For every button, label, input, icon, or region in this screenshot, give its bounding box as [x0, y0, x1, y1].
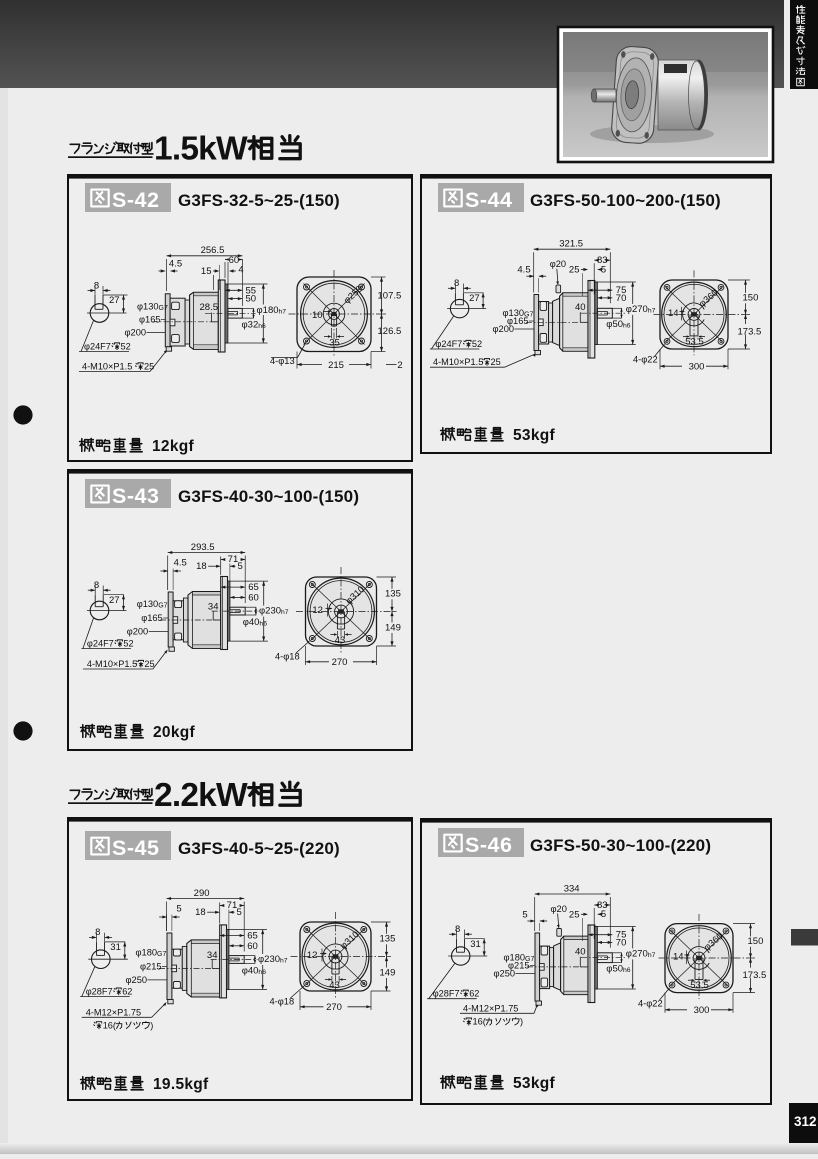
svg-text:8: 8 [454, 278, 459, 289]
svg-text:10: 10 [312, 310, 323, 321]
svg-text:12: 12 [312, 605, 323, 616]
svg-text:300: 300 [694, 1005, 710, 1016]
svg-text:150: 150 [743, 292, 759, 303]
svg-text:290: 290 [194, 888, 210, 899]
svg-text:20kgf: 20kgf [153, 724, 196, 741]
svg-text:14: 14 [668, 308, 679, 319]
svg-text:31: 31 [470, 939, 481, 950]
svg-text:27: 27 [469, 293, 480, 304]
svg-text:107.5: 107.5 [378, 291, 402, 302]
svg-text:43: 43 [329, 980, 340, 991]
svg-text:62: 62 [122, 987, 132, 997]
svg-text:φ24F7: φ24F7 [435, 339, 462, 349]
svg-text:270: 270 [326, 1002, 342, 1013]
svg-text:4-φ18: 4-φ18 [275, 652, 300, 662]
svg-text:G3FS-40-5~25-(220): G3FS-40-5~25-(220) [178, 839, 340, 858]
svg-text:G3FS-50-30~100-(220): G3FS-50-30~100-(220) [530, 836, 711, 855]
svg-text:25: 25 [144, 362, 154, 372]
svg-text:256.5: 256.5 [201, 245, 225, 256]
svg-text:S-43: S-43 [112, 484, 159, 508]
svg-text:53.5: 53.5 [690, 980, 709, 991]
svg-text:4-φ22: 4-φ22 [638, 998, 663, 1008]
svg-text:18: 18 [196, 561, 207, 572]
svg-text:40: 40 [575, 947, 586, 958]
svg-text:φ28F7: φ28F7 [86, 987, 113, 997]
svg-text:G3FS-40-30~100-(150): G3FS-40-30~100-(150) [178, 487, 359, 506]
svg-text:25: 25 [569, 265, 580, 276]
svg-text:52: 52 [123, 639, 133, 649]
svg-text:65: 65 [247, 931, 258, 942]
svg-text:149: 149 [385, 623, 401, 634]
svg-text:5: 5 [522, 909, 527, 920]
svg-text:G3FS-32-5~25-(150): G3FS-32-5~25-(150) [178, 191, 340, 210]
svg-text:4-M10×P1.5: 4-M10×P1.5 [87, 659, 137, 669]
svg-text:149: 149 [380, 968, 396, 979]
svg-text:φ24F7: φ24F7 [84, 342, 111, 352]
svg-text:53kgf: 53kgf [513, 427, 556, 444]
svg-text:4-M10×P1.5: 4-M10×P1.5 [433, 357, 483, 367]
svg-text:4-φ22: 4-φ22 [633, 355, 658, 365]
svg-text:19.5kgf: 19.5kgf [153, 1076, 209, 1093]
svg-text:4.5: 4.5 [517, 265, 530, 276]
svg-text:φ250: φ250 [126, 975, 148, 985]
svg-text:4-M10×P1.5: 4-M10×P1.5 [82, 362, 132, 372]
svg-text:φ165: φ165 [139, 315, 161, 325]
svg-text:34: 34 [208, 602, 219, 613]
svg-text:312: 312 [794, 1114, 817, 1129]
svg-text:φ24F7: φ24F7 [87, 639, 114, 649]
svg-text:135: 135 [380, 934, 396, 945]
svg-text:2: 2 [397, 360, 402, 371]
svg-text:215: 215 [328, 360, 344, 371]
svg-text:16(: 16( [103, 1020, 116, 1030]
svg-text:5: 5 [237, 907, 242, 918]
svg-text:16(: 16( [473, 1016, 486, 1026]
svg-text:293.5: 293.5 [191, 542, 215, 553]
svg-text:150: 150 [748, 936, 764, 947]
svg-text:5: 5 [238, 561, 243, 572]
svg-text:S-45: S-45 [112, 836, 159, 860]
svg-text:8: 8 [95, 927, 100, 938]
svg-text:53kgf: 53kgf [513, 1075, 556, 1092]
svg-text:53.5: 53.5 [685, 336, 704, 347]
svg-text:φ20: φ20 [551, 904, 567, 914]
svg-text:5: 5 [601, 909, 606, 920]
svg-text:126.5: 126.5 [378, 326, 402, 337]
svg-text:60: 60 [248, 593, 259, 604]
svg-text:300: 300 [689, 361, 705, 372]
svg-text:31: 31 [110, 942, 121, 953]
svg-text:φ165: φ165 [141, 613, 163, 623]
svg-text:4.5: 4.5 [169, 259, 182, 270]
svg-text:25: 25 [144, 659, 154, 669]
svg-text:4-φ18: 4-φ18 [270, 997, 295, 1007]
svg-text:15: 15 [201, 266, 212, 277]
svg-text:62: 62 [469, 989, 479, 999]
svg-text:321.5: 321.5 [559, 239, 583, 250]
svg-text:φ250: φ250 [494, 969, 516, 979]
svg-text:50: 50 [246, 294, 257, 305]
svg-text:135: 135 [385, 589, 401, 600]
svg-text:52: 52 [121, 342, 131, 352]
svg-text:φ28F7: φ28F7 [433, 989, 460, 999]
svg-text:8: 8 [455, 924, 460, 935]
svg-text:173.5: 173.5 [738, 326, 762, 337]
svg-text:27: 27 [109, 595, 120, 606]
svg-text:S-46: S-46 [465, 833, 512, 857]
svg-text:25: 25 [569, 909, 580, 920]
svg-text:12kgf: 12kgf [152, 438, 195, 455]
svg-text:4-M12×P1.75: 4-M12×P1.75 [463, 1003, 518, 1013]
svg-text:S-44: S-44 [465, 188, 512, 212]
svg-text:5: 5 [176, 904, 181, 915]
svg-text:12: 12 [307, 950, 318, 961]
svg-text:φ215: φ215 [140, 961, 162, 971]
svg-text:27: 27 [109, 295, 120, 306]
svg-text:40: 40 [575, 302, 586, 313]
svg-text:): ) [150, 1020, 153, 1030]
svg-text:G3FS-50-100~200-(150): G3FS-50-100~200-(150) [530, 191, 721, 210]
svg-text:φ200: φ200 [125, 328, 147, 338]
svg-text:52: 52 [472, 339, 482, 349]
svg-text:35: 35 [329, 337, 340, 348]
svg-text:18: 18 [195, 907, 206, 918]
svg-text:4-M12×P1.75: 4-M12×P1.75 [86, 1007, 141, 1017]
svg-text:5: 5 [601, 264, 606, 275]
svg-text:34: 34 [207, 950, 218, 961]
svg-text:4: 4 [238, 264, 243, 275]
svg-text:): ) [520, 1016, 523, 1026]
svg-text:28.5: 28.5 [200, 302, 219, 313]
svg-text:270: 270 [332, 657, 348, 668]
svg-text:70: 70 [616, 938, 627, 949]
svg-text:334: 334 [564, 883, 580, 894]
svg-text:70: 70 [616, 293, 627, 304]
svg-text:8: 8 [94, 281, 99, 292]
svg-text:60: 60 [247, 941, 258, 952]
svg-text:2.2kW: 2.2kW [154, 777, 248, 814]
svg-text:8: 8 [94, 580, 99, 591]
svg-text:173.5: 173.5 [743, 970, 767, 981]
svg-text:65: 65 [248, 582, 259, 593]
svg-text:φ200: φ200 [127, 627, 149, 637]
svg-text:φ20: φ20 [550, 259, 566, 269]
svg-text:14: 14 [673, 952, 684, 963]
svg-text:1.5kW: 1.5kW [154, 131, 248, 168]
svg-text:43: 43 [335, 635, 346, 646]
svg-text:φ200: φ200 [493, 324, 515, 334]
svg-text:4.5: 4.5 [174, 558, 187, 569]
svg-text:25: 25 [491, 357, 501, 367]
svg-text:S-42: S-42 [112, 188, 159, 212]
